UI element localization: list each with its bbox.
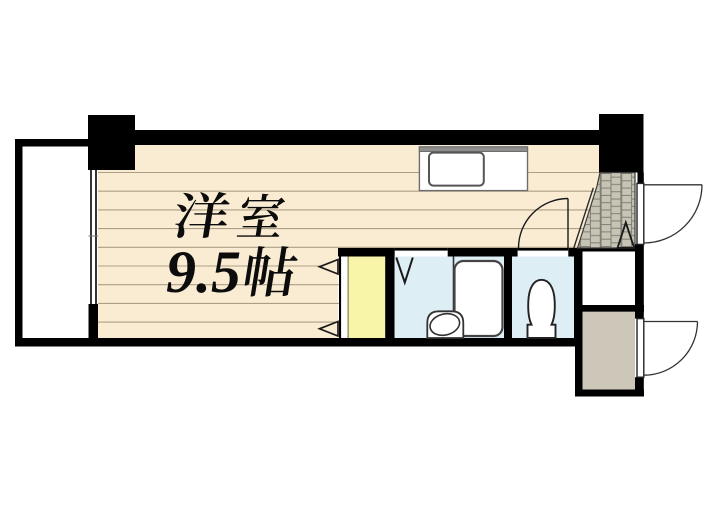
svg-text:9.5: 9.5	[166, 239, 241, 305]
